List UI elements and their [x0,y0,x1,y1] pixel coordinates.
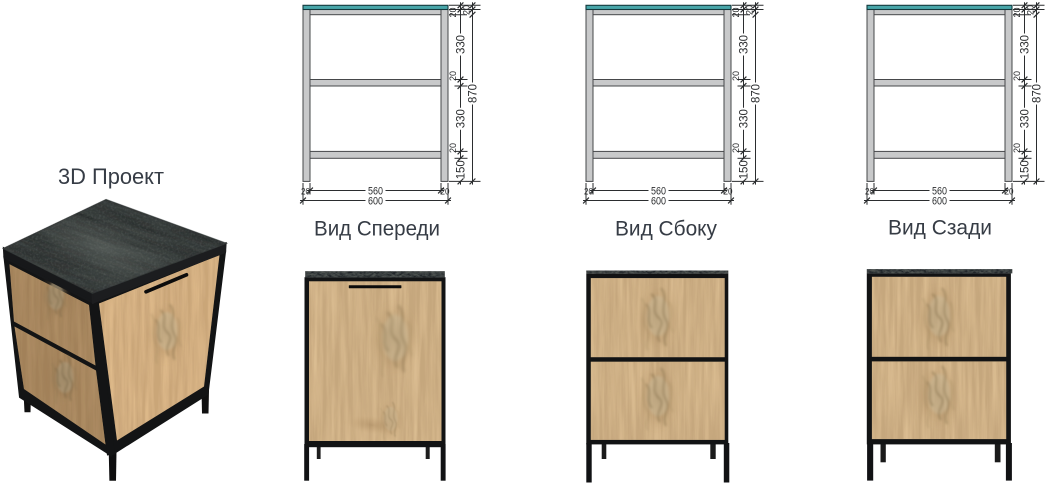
svg-text:20: 20 [724,187,733,197]
svg-text:20: 20 [731,71,741,81]
svg-text:Вид Сбоку: Вид Сбоку [615,216,717,240]
svg-text:3D Проект: 3D Проект [58,164,164,189]
svg-text:870: 870 [749,84,763,103]
svg-text:150: 150 [454,160,468,179]
svg-text:20: 20 [584,187,593,197]
svg-text:330: 330 [737,35,751,54]
svg-text:20: 20 [448,143,458,153]
svg-text:20: 20 [731,143,741,153]
svg-text:20: 20 [448,71,458,81]
svg-text:20: 20 [1012,143,1022,153]
svg-text:20: 20 [441,187,450,197]
svg-text:330: 330 [737,109,751,128]
svg-text:150: 150 [737,160,751,179]
svg-text:330: 330 [1018,35,1032,54]
svg-text:20: 20 [301,187,310,197]
svg-text:870: 870 [1030,84,1044,103]
svg-text:20: 20 [1026,5,1036,15]
svg-text:150: 150 [1018,160,1032,179]
svg-text:600: 600 [651,196,666,208]
svg-text:20: 20 [1012,8,1022,18]
svg-text:20: 20 [865,187,874,197]
svg-text:600: 600 [368,196,383,208]
svg-text:20: 20 [1005,187,1014,197]
svg-text:330: 330 [1018,109,1032,128]
svg-text:Вид Спереди: Вид Спереди [314,217,440,241]
svg-text:20: 20 [462,5,472,15]
svg-text:870: 870 [466,84,480,103]
svg-text:Вид Сзади: Вид Сзади [888,215,992,239]
svg-text:20: 20 [448,8,458,18]
svg-text:20: 20 [745,5,755,15]
svg-text:20: 20 [731,8,741,18]
svg-text:20: 20 [1012,71,1022,81]
svg-text:330: 330 [454,35,468,54]
svg-text:600: 600 [932,196,947,208]
svg-text:330: 330 [454,109,468,128]
